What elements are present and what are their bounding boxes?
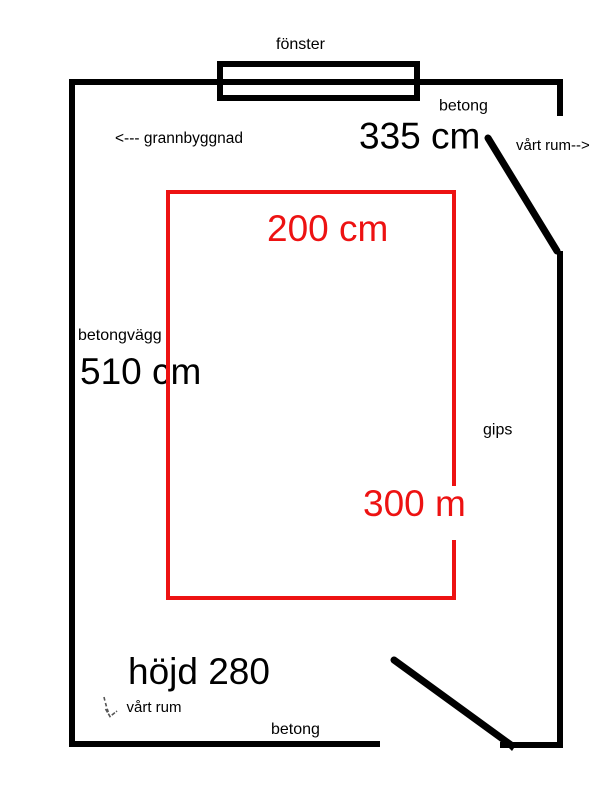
svg-text:betong: betong — [439, 98, 488, 115]
svg-text:vårt rum-->: vårt rum--> — [516, 137, 590, 154]
svg-text:200 cm: 200 cm — [267, 208, 388, 249]
svg-text:300 m: 300 m — [363, 483, 466, 524]
svg-text:510 cm: 510 cm — [80, 351, 201, 392]
svg-text:vårt rum: vårt rum — [127, 699, 182, 716]
svg-text:fönster: fönster — [276, 36, 326, 53]
svg-text:betongvägg: betongvägg — [78, 327, 162, 344]
svg-text:höjd 280: höjd 280 — [128, 651, 270, 692]
svg-text:betong: betong — [271, 721, 320, 738]
svg-text:335 cm: 335 cm — [359, 116, 480, 157]
svg-text:<--- grannbyggnad: <--- grannbyggnad — [115, 130, 243, 147]
svg-text:gips: gips — [483, 422, 512, 439]
